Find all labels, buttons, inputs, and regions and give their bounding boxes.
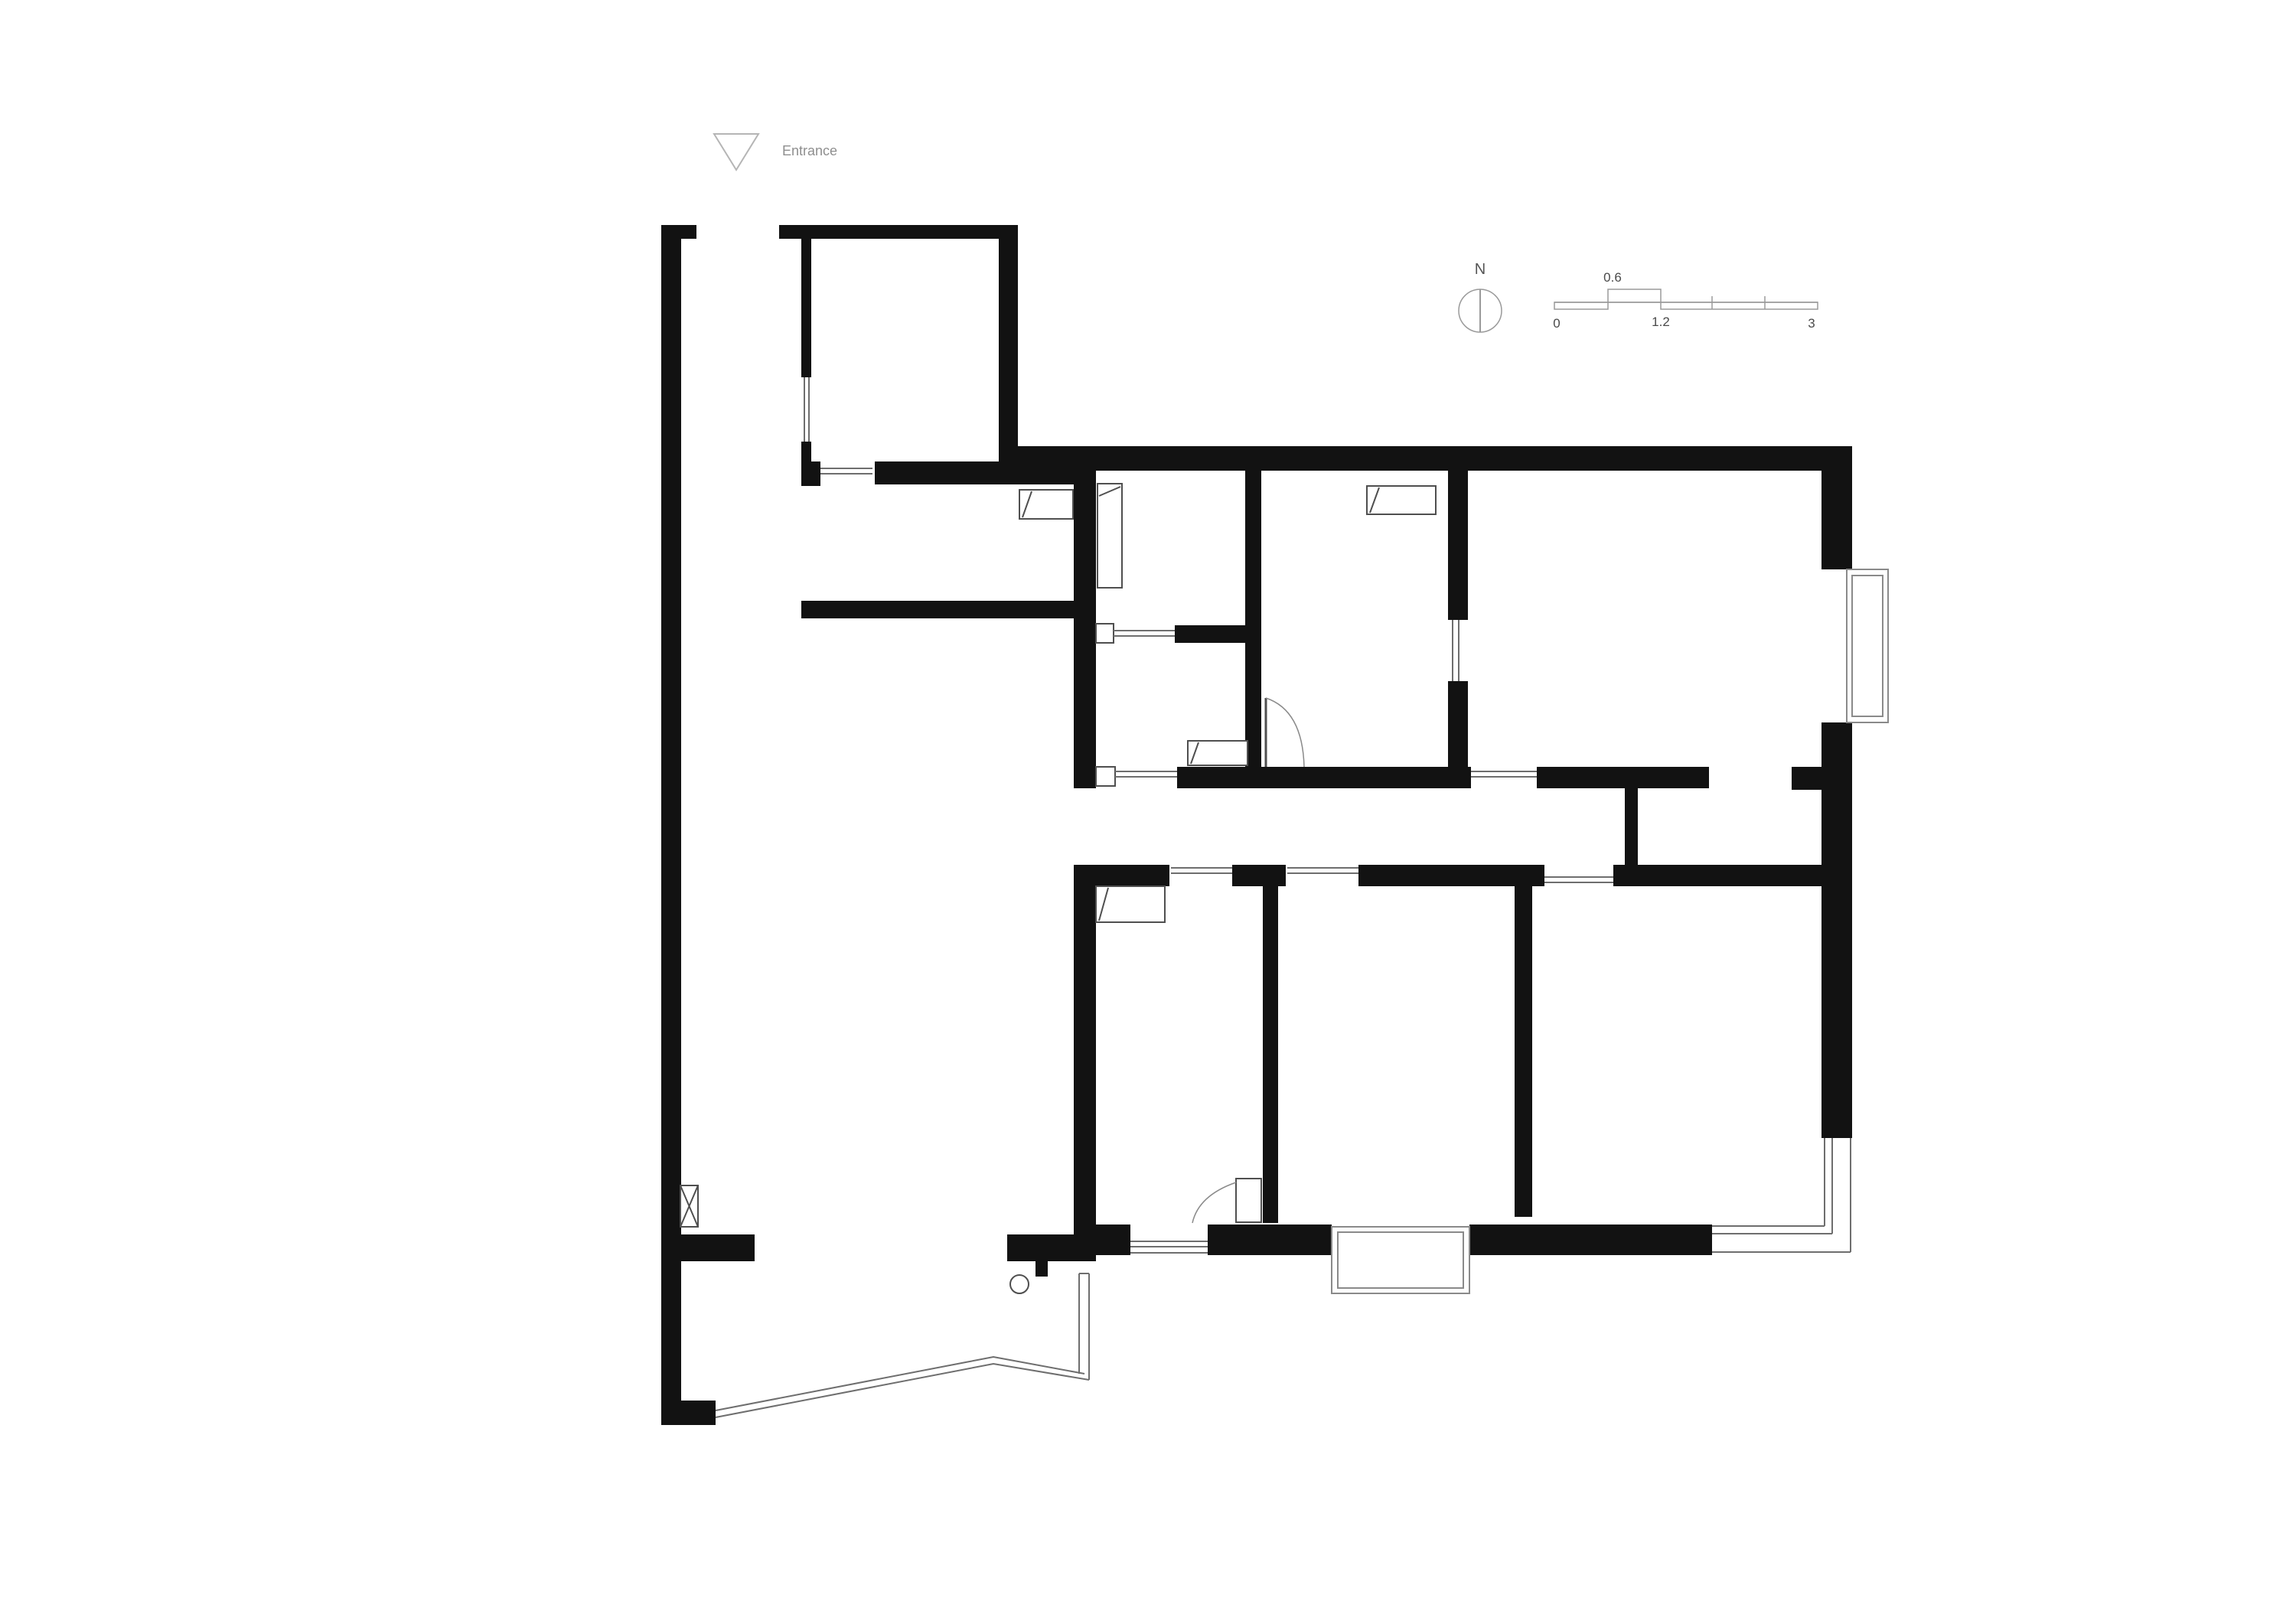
door-swing-arc [1192, 1182, 1236, 1223]
bottom-wall-3 [1469, 1225, 1712, 1255]
wall-c-lower [1448, 681, 1468, 767]
scale-value: 1.2 [1652, 315, 1670, 329]
floorplan-canvas: EntranceN0.601.23 [0, 0, 2296, 1624]
bottom-separator-wall [1515, 886, 1532, 1217]
foyer-wall-right [999, 239, 1018, 465]
terrace-bar-stub [1035, 1261, 1048, 1277]
bottom-wall-2 [1208, 1225, 1332, 1255]
door-leaf [1096, 767, 1115, 786]
corridor-wall-top-2 [1537, 767, 1709, 788]
main-wall-top [1018, 446, 1852, 471]
door-swing-arc [1266, 698, 1304, 767]
scale-value: 0.6 [1603, 270, 1622, 285]
foyer-wall-left-upper [801, 239, 811, 377]
bed [1096, 886, 1165, 922]
foyer-wall-bottom [875, 461, 1018, 484]
outer-wall-right-upper [1821, 446, 1852, 569]
scale-box [1608, 289, 1661, 302]
wall-b2 [1263, 886, 1278, 1223]
wall-b [1245, 471, 1261, 767]
terrace-parapet [716, 1364, 1089, 1417]
corridor-wall-bottom-4 [1613, 865, 1852, 886]
bench [1188, 741, 1247, 765]
wall-a-upper [1074, 453, 1096, 788]
scale-value: 0 [1553, 316, 1560, 331]
foyer-wall-top [779, 225, 1018, 239]
corridor-wall-top-1 [1177, 767, 1471, 788]
cabinet [1097, 484, 1122, 588]
bottom-wall-1 [1074, 1225, 1130, 1255]
scale-value: 3 [1808, 316, 1815, 331]
bay-window-bottom-inner [1338, 1232, 1463, 1288]
bay-window-right-inner [1852, 576, 1883, 716]
wall-a-lower [1074, 865, 1096, 1261]
bath-stub-wall [1175, 625, 1245, 643]
bed [1367, 486, 1436, 514]
terrace-bar-wall [1007, 1234, 1080, 1261]
entry-stub-wall [677, 1234, 755, 1261]
outer-wall-right-mid [1821, 722, 1852, 1138]
scale-box [1661, 302, 1818, 309]
floor-plan-drawing: EntranceN0.601.23 [0, 0, 2296, 1624]
north-label: N [1475, 261, 1486, 278]
terrace-parapet [716, 1357, 1084, 1410]
scale-box [1554, 302, 1608, 309]
door-leaf [1096, 624, 1114, 643]
corridor-wall-bottom-2 [1232, 865, 1286, 886]
entrance-label: Entrance [782, 143, 837, 158]
corridor-stub-right [1792, 767, 1821, 790]
floor-drain [1010, 1275, 1029, 1293]
outer-wall-left-cap [661, 225, 696, 239]
outer-wall-left-corner [664, 1401, 716, 1425]
foyer-wall-left-block [801, 461, 820, 486]
closet-divider [1625, 773, 1638, 872]
triangle-down-icon [714, 134, 758, 170]
bedroom1-wall-bottom [801, 601, 1096, 618]
corridor-wall-bottom-3 [1358, 865, 1544, 886]
door-leaf [1236, 1179, 1261, 1222]
wall-c-upper [1448, 471, 1468, 620]
